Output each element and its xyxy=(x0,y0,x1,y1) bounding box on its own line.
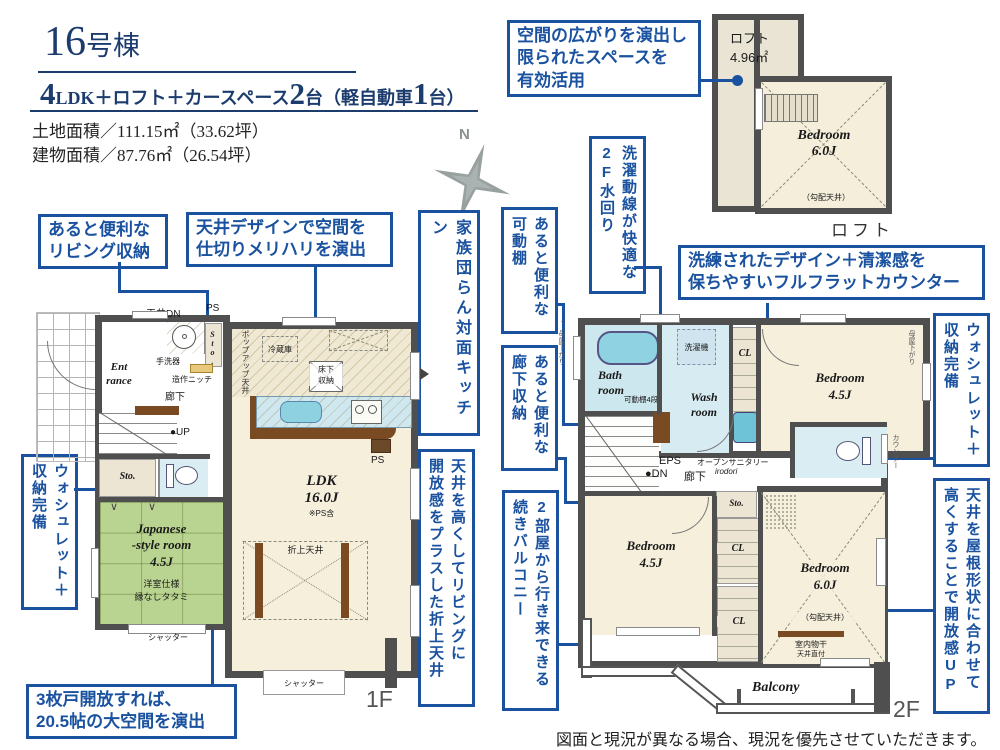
f1-hall-label: 廊下 xyxy=(165,388,185,403)
callout-loft-space: 空間の広がりを演出し限られたスペースを有効活用 xyxy=(507,20,701,97)
window xyxy=(922,363,931,401)
wall xyxy=(756,325,761,453)
callout-washlet-1f: ウォシュレット＋収納完備 xyxy=(21,454,78,610)
sanitary-basin-icon xyxy=(733,412,758,443)
moya-label-right: 母屋下がり xyxy=(906,330,916,365)
window xyxy=(282,317,336,326)
f2-closet-1 xyxy=(731,327,759,415)
spec-num3: 1 xyxy=(413,76,429,111)
shutter-label-bottom: シャッター xyxy=(263,678,345,689)
spec-text2: 台（軽自動車 xyxy=(305,88,413,108)
callout-coffered: 天井を高くしてリビングに開放感をプラスした折上天井 xyxy=(418,449,475,707)
popup-ceiling-label: ポップアップ天井 xyxy=(240,330,251,394)
ldk-label-3: ※PS含 xyxy=(225,508,418,519)
balcony-label: Balcony xyxy=(752,680,799,696)
coffered-label: 折上天井 xyxy=(268,543,343,556)
callout-living-storage: あると便利なリビング収納 xyxy=(38,214,168,269)
floor1-label: 1F xyxy=(366,686,393,713)
layout-spec: 4LDK＋ロフト＋カースペース2台（軽自動車1台） xyxy=(40,76,464,112)
ps-top-label: PS xyxy=(206,303,219,314)
sink-icon xyxy=(280,401,322,423)
callout-counter: 洗練されたデザイン＋清潔感を保ちやすいフルフラットカウンター xyxy=(678,245,985,300)
open-sanitary-brand: irodori xyxy=(715,467,737,476)
counter-vertical-label: カウンター xyxy=(890,434,900,469)
building-suffix: 号棟 xyxy=(86,31,140,61)
loft-bedroom-label: Bedroom6.0J xyxy=(788,128,860,160)
hall-shelf xyxy=(653,412,670,443)
shutter-label-left: シャッター xyxy=(138,632,198,643)
toilet-bowl-icon xyxy=(836,441,860,461)
wall xyxy=(657,325,662,415)
japanese-room-label: Japanese-style room4.5J xyxy=(95,521,228,570)
floorplan-flyer: 16号棟 4LDK＋ロフト＋カースペース2台（軽自動車1台） 土地面積／111.… xyxy=(0,0,1000,750)
building-number: 16 xyxy=(44,19,86,65)
balcony-rail xyxy=(716,703,890,714)
counter-front xyxy=(250,428,396,439)
spec-text3: 台） xyxy=(428,88,464,108)
bathroom-label: Bathroom xyxy=(598,368,624,398)
callout-hall-storage: あると便利な廊下収納 xyxy=(501,345,558,471)
fridge-label: 冷蔵庫 xyxy=(262,344,298,355)
spec-text1: LDK＋ロフト＋カースペース xyxy=(56,88,290,108)
wall xyxy=(729,325,733,453)
door-marker-icon xyxy=(420,368,429,380)
spec-num2: 2 xyxy=(289,76,305,111)
window xyxy=(616,627,700,636)
wall xyxy=(874,662,890,712)
balcony-post xyxy=(737,689,741,704)
entrance-label: Entrance xyxy=(97,360,141,389)
rule-line-2 xyxy=(30,110,478,112)
bedroom60-label: Bedroom6.0J xyxy=(790,560,860,594)
ldk-label-2: 16.0J xyxy=(225,490,418,507)
loft-slope-label: （勾配天井） xyxy=(786,192,866,203)
closet-label: CL xyxy=(717,616,761,627)
door-fold-mark: ∨ xyxy=(110,500,118,513)
up-label: ●UP xyxy=(170,427,190,438)
connector xyxy=(118,262,121,292)
callout-washlet-2f: ウォシュレット＋収納完備 xyxy=(933,313,990,467)
coffered-beam xyxy=(255,543,263,618)
f2-hall-label: 廊下 xyxy=(684,468,706,484)
window xyxy=(820,658,870,667)
f1-sto-room-label: Sto. xyxy=(99,471,156,482)
closet-label: CL xyxy=(731,348,759,359)
window xyxy=(91,548,99,598)
niche-label: 造作ニッチ xyxy=(172,374,212,385)
callout-doors: 3枚戸開放すれば、20.5帖の大空間を演出 xyxy=(26,684,237,739)
washer-label: 洗濯機 xyxy=(677,342,716,353)
drying-bar xyxy=(778,631,844,637)
slope-ceiling-label: （勾配天井） xyxy=(785,612,865,623)
callout-roof: 天井を屋根形状に合わせて高くすることで開放感UP xyxy=(933,478,990,714)
ldk-label-1: LDK xyxy=(225,473,418,490)
connector xyxy=(118,290,209,293)
balcony-post xyxy=(851,689,855,704)
connector xyxy=(701,79,736,82)
washbasin-label: 手洗器 xyxy=(156,356,180,367)
connector-dot xyxy=(732,75,743,86)
door-fold-mark: ∨ xyxy=(148,500,156,513)
loft-area-label: ロフト4.96㎡ xyxy=(730,28,769,66)
window xyxy=(410,352,420,400)
bedroom45-bottom-label: Bedroom4.5J xyxy=(605,538,697,572)
connector xyxy=(634,266,661,269)
coffered-beam xyxy=(341,543,349,618)
ps-duct xyxy=(371,439,391,453)
window xyxy=(410,585,420,637)
toilet-tank-icon xyxy=(166,464,174,488)
f1-sto-strip-label: Sto. xyxy=(208,330,217,366)
window xyxy=(881,434,888,464)
loft-caption: ロフト xyxy=(831,216,894,241)
dn-label: ●DN xyxy=(645,468,668,480)
tatami-note-1: 洋室仕様 xyxy=(95,577,228,590)
spec-num1: 4 xyxy=(40,76,56,111)
window xyxy=(410,468,420,520)
underfloor-label: 床下収納 xyxy=(309,364,343,386)
land-area: 土地面積／111.15㎡（33.62坪） xyxy=(32,117,269,142)
window xyxy=(640,314,680,323)
window xyxy=(800,314,846,323)
closet-label: CL xyxy=(717,543,759,554)
page-title: 16号棟 xyxy=(44,18,140,66)
bedroom45-top-label: Bedroom4.5J xyxy=(790,370,890,404)
ps-bottom-label: PS xyxy=(371,455,384,466)
bathtub-icon xyxy=(597,331,659,365)
f1-stairs-landing xyxy=(135,406,179,415)
building-area: 建物面積／87.76㎡（26.54坪） xyxy=(32,141,262,166)
burner-icon xyxy=(355,405,364,414)
callout-kitchen: 家族団らん対面キッチン xyxy=(418,210,480,436)
balcony-rail xyxy=(581,666,679,677)
burner-icon xyxy=(368,405,377,414)
disclaimer: 図面と現況が異なる場合、現況を優先させていただきます。 xyxy=(556,726,986,750)
washbasin-drain-icon xyxy=(182,334,187,339)
loft-ladder xyxy=(764,94,818,122)
f2-sto-label: Sto. xyxy=(716,498,757,508)
toilet-bowl-icon xyxy=(175,466,198,485)
floor2-label: 2F xyxy=(893,696,920,723)
callout-shelf: あると便利な可動棚 xyxy=(501,207,558,334)
eps-label: EPS xyxy=(659,455,681,467)
connector xyxy=(564,457,567,503)
callout-ceiling-design: 天井デザインで空間を仕切りメリハリを演出 xyxy=(186,212,393,267)
rule-line xyxy=(38,71,356,73)
up-arrow-icon: ↑ xyxy=(910,318,914,327)
tatami-note-2: 縁なしタタミ xyxy=(95,590,228,603)
moya-label-left: 母屋下がり xyxy=(556,330,566,365)
niche-box xyxy=(190,364,213,373)
roof-hatch-zone xyxy=(765,494,797,530)
window xyxy=(573,336,581,380)
shelf4-label: 可動棚4段 xyxy=(624,394,658,405)
wall xyxy=(385,638,397,688)
loft-door-gap xyxy=(755,88,763,130)
window xyxy=(876,538,886,586)
callout-laundry: 洗濯動線が快適な2F水回り xyxy=(589,136,646,294)
toilet-tank-icon xyxy=(862,437,871,465)
window xyxy=(132,311,168,319)
callout-twin-balcony: 2部屋から行き来できる続きバルコニー xyxy=(502,490,559,711)
up-arrow-icon: ↑ xyxy=(560,318,564,327)
